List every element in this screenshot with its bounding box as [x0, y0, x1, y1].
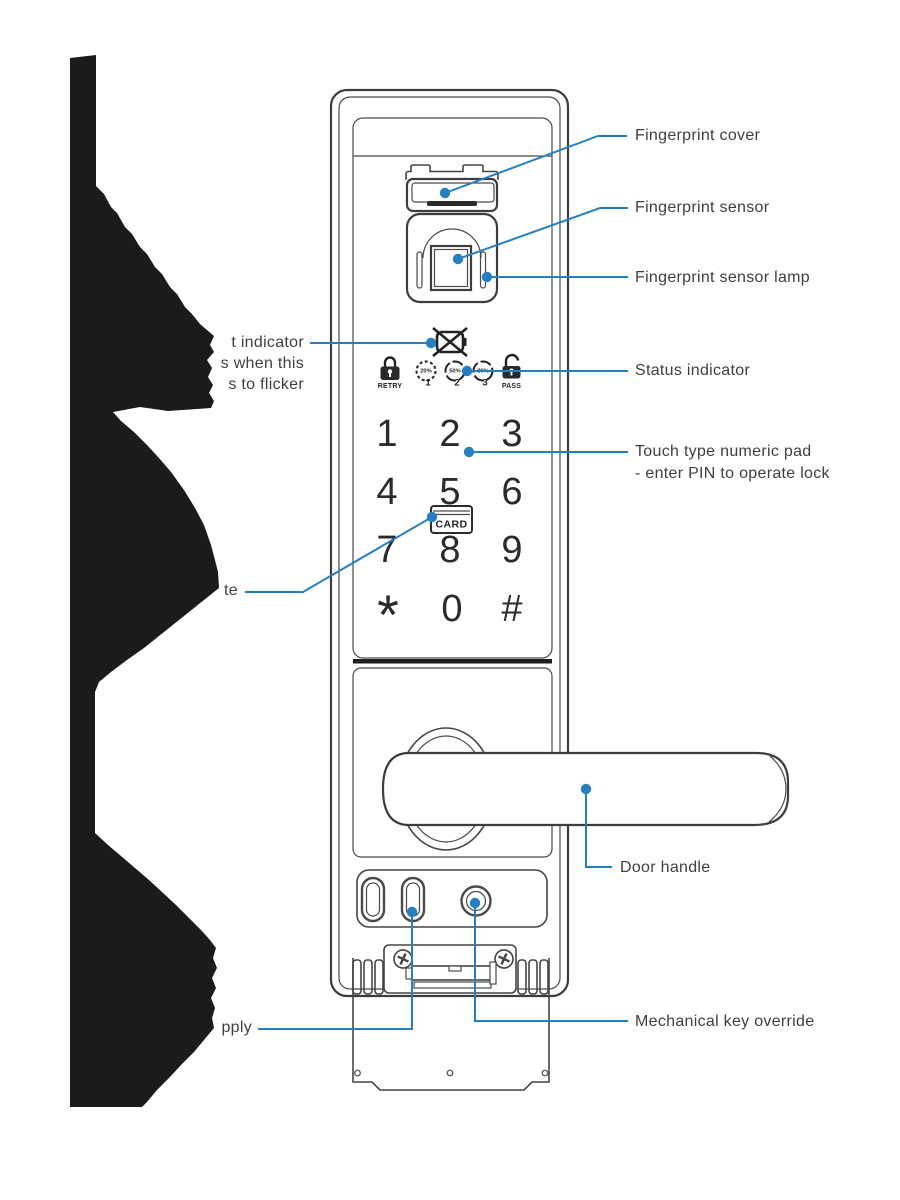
- card-label: CARD: [436, 519, 468, 531]
- label-door-handle: Door handle: [620, 858, 710, 878]
- bottom-section: [353, 878, 549, 1090]
- pass-label: PASS: [502, 383, 521, 390]
- battery-step-2: 2: [454, 378, 459, 389]
- latch: [406, 962, 496, 988]
- fingerprint-module: [406, 165, 498, 302]
- label-obscured-power-supply: pply: [221, 1018, 252, 1038]
- label-fingerprint-sensor-lamp: Fingerprint sensor lamp: [635, 268, 810, 288]
- key-0: 0: [441, 588, 462, 630]
- obscured-line-1: t indicator: [221, 332, 304, 353]
- label-numeric-pad-line2: - enter PIN to operate lock: [635, 463, 830, 485]
- battery-50-label: 50%: [449, 369, 461, 375]
- key-7: 7: [376, 529, 397, 571]
- label-status-indicator: Status indicator: [635, 361, 750, 381]
- low-battery-icon: [433, 328, 467, 356]
- torn-black-blob: [70, 55, 219, 1107]
- key-1: 1: [376, 413, 397, 455]
- card-slot-icon: CARD: [431, 506, 472, 533]
- label-fingerprint-sensor: Fingerprint sensor: [635, 198, 769, 218]
- battery-level-icons: 20% 1 50% 2 80% 3: [417, 362, 493, 389]
- key-3: 3: [501, 413, 522, 455]
- key-hash: #: [501, 588, 522, 630]
- fingerprint-sensor-lamp-left: [417, 252, 422, 288]
- fingerprint-sensor: [407, 214, 497, 302]
- label-numeric-pad-line1: Touch type numeric pad: [635, 441, 830, 463]
- key-star: *: [377, 583, 399, 646]
- label-obscured-battery-indicator: t indicator s when this s to flicker: [221, 332, 304, 395]
- key-8: 8: [439, 529, 460, 571]
- status-indicator-row: RETRY 20% 1 50% 2 80% 3 PASS: [378, 355, 522, 390]
- fingerprint-cover: [407, 179, 497, 211]
- battery-step-3: 3: [482, 378, 487, 389]
- key-9: 9: [501, 529, 522, 571]
- key-2: 2: [439, 413, 460, 455]
- label-fingerprint-cover: Fingerprint cover: [635, 126, 760, 146]
- mount-plate: [384, 945, 516, 993]
- retry-label: RETRY: [378, 383, 403, 390]
- panel-separator: [353, 659, 552, 664]
- battery-20-label: 20%: [420, 369, 432, 375]
- label-obscured-card: te: [224, 581, 238, 601]
- key-4: 4: [376, 471, 397, 513]
- key-6: 6: [501, 471, 522, 513]
- retry-lock-icon: RETRY: [378, 358, 403, 391]
- pass-unlock-icon: PASS: [502, 355, 521, 390]
- label-numeric-pad: Touch type numeric pad - enter PIN to op…: [635, 441, 830, 485]
- label-mechanical-key-override: Mechanical key override: [635, 1012, 814, 1032]
- keypad: 1 2 3 4 5 6 7 8 9 * 0 # CARD: [376, 413, 522, 646]
- lock-diagram-page: RETRY 20% 1 50% 2 80% 3 PASS 1 2 3 4 5 6…: [0, 0, 900, 1200]
- obscured-line-2: s when this: [221, 353, 304, 374]
- battery-step-1: 1: [425, 378, 431, 389]
- obscured-line-3: s to flicker: [221, 374, 304, 395]
